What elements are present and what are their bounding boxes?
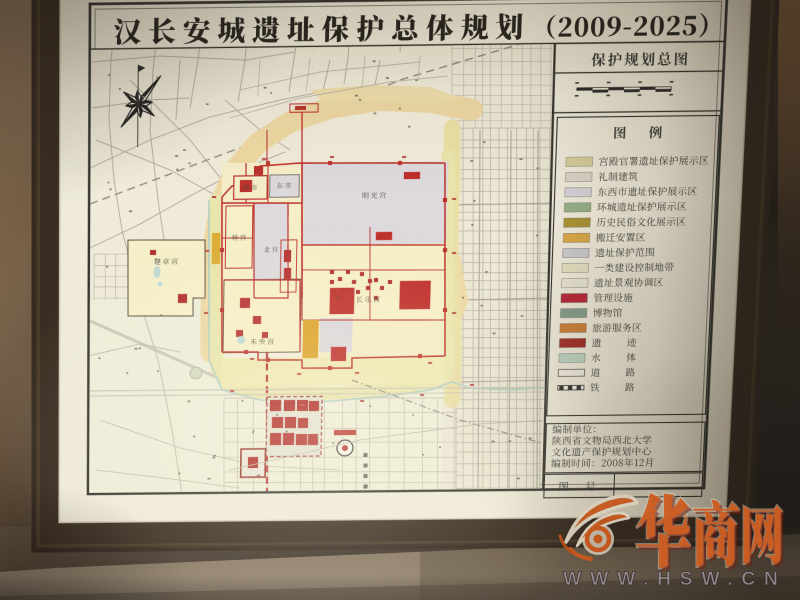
svg-text:WWW.HSW.CN: WWW.HSW.CN [563, 568, 787, 590]
